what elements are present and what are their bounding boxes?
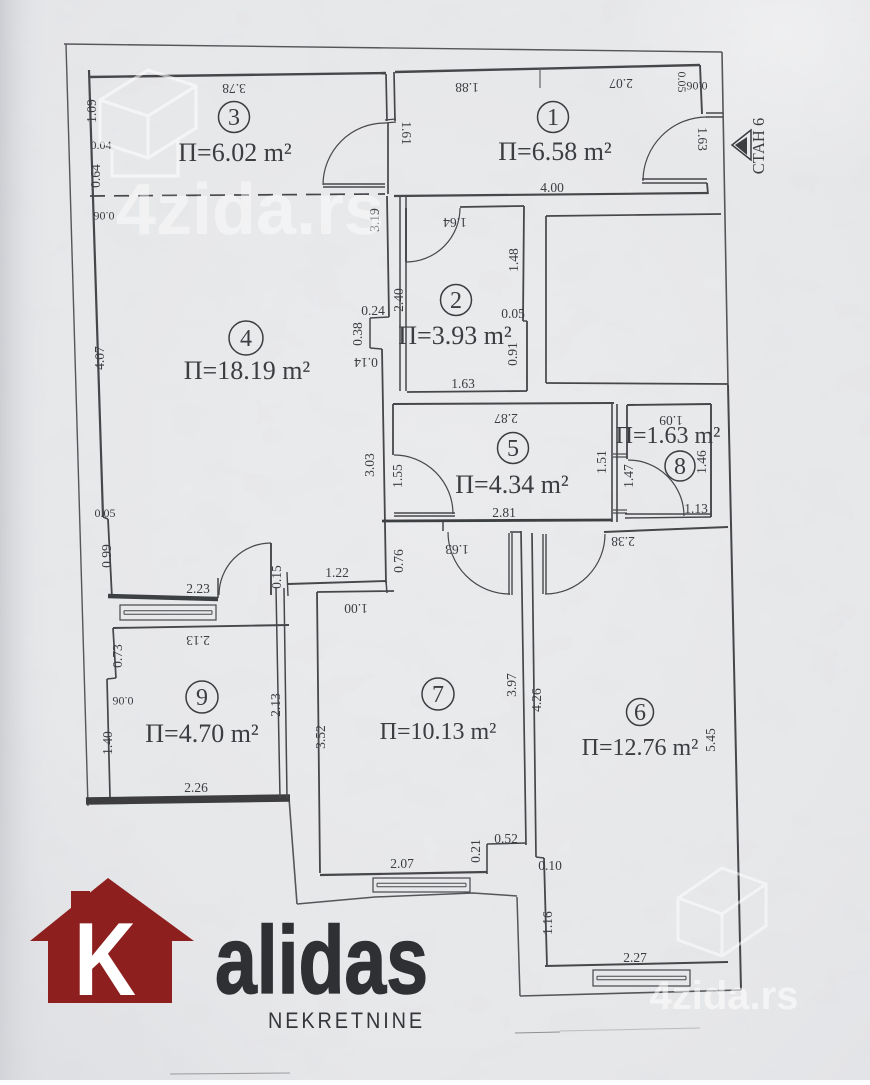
- svg-text:3.97: 3.97: [504, 673, 519, 697]
- svg-text:4.26: 4.26: [529, 688, 544, 712]
- svg-text:1: 1: [547, 105, 559, 131]
- svg-text:alidas: alidas: [215, 907, 428, 1014]
- svg-text:0.21: 0.21: [468, 839, 483, 863]
- svg-text:1.00: 1.00: [344, 601, 368, 616]
- svg-text:1.61: 1.61: [399, 121, 414, 145]
- svg-text:П=10.13 m²: П=10.13 m²: [380, 719, 497, 745]
- svg-text:4: 4: [240, 326, 252, 352]
- svg-text:0.05: 0.05: [501, 306, 525, 321]
- svg-text:П=4.70 m²: П=4.70 m²: [145, 719, 259, 748]
- svg-text:П=6.02 m²: П=6.02 m²: [178, 138, 292, 167]
- svg-text:0.64: 0.64: [88, 164, 103, 188]
- svg-text:0.24: 0.24: [361, 303, 385, 318]
- svg-text:1.09: 1.09: [659, 413, 683, 428]
- svg-text:K: K: [74, 902, 136, 1018]
- svg-text:5.45: 5.45: [703, 728, 718, 752]
- svg-text:П=12.76 m²: П=12.76 m²: [582, 735, 699, 761]
- svg-text:2.13: 2.13: [186, 633, 210, 648]
- svg-text:1.88: 1.88: [455, 80, 479, 95]
- svg-text:0.06: 0.06: [687, 79, 708, 93]
- svg-text:1.13: 1.13: [684, 501, 708, 516]
- svg-text:4zida.rs: 4zida.rs: [650, 974, 799, 1018]
- svg-text:3.78: 3.78: [222, 81, 246, 96]
- svg-text:4zida.rs: 4zida.rs: [116, 170, 384, 250]
- svg-text:2.87: 2.87: [494, 411, 518, 426]
- svg-text:1.63: 1.63: [451, 376, 475, 391]
- svg-text:9: 9: [196, 685, 208, 711]
- svg-text:2: 2: [450, 288, 462, 314]
- svg-text:4.00: 4.00: [540, 180, 564, 195]
- svg-text:0.06: 0.06: [113, 694, 134, 708]
- svg-text:0.38: 0.38: [350, 322, 365, 346]
- svg-text:2.23: 2.23: [186, 581, 210, 596]
- svg-text:1.40: 1.40: [100, 731, 115, 755]
- svg-text:П=3.93 m²: П=3.93 m²: [398, 321, 512, 350]
- svg-text:NEKRETNINE: NEKRETNINE: [268, 1008, 425, 1033]
- svg-text:П=6.58 m²: П=6.58 m²: [498, 137, 612, 166]
- svg-text:0.05: 0.05: [95, 506, 116, 520]
- svg-text:3.52: 3.52: [313, 725, 328, 749]
- svg-text:0.91: 0.91: [505, 342, 520, 366]
- svg-text:0.15: 0.15: [269, 565, 284, 589]
- svg-text:П=4.34 m²: П=4.34 m²: [455, 470, 569, 499]
- svg-text:П=18.19 m²: П=18.19 m²: [184, 356, 311, 385]
- svg-text:2.27: 2.27: [623, 950, 647, 965]
- svg-text:СТАН 6: СТАН 6: [749, 118, 768, 174]
- svg-text:1.16: 1.16: [540, 911, 555, 935]
- svg-text:0.14: 0.14: [354, 355, 378, 370]
- svg-text:3.03: 3.03: [362, 453, 377, 477]
- svg-text:3: 3: [228, 105, 240, 131]
- svg-text:1.51: 1.51: [594, 450, 609, 474]
- svg-text:1.47: 1.47: [621, 464, 636, 488]
- svg-text:6: 6: [634, 700, 646, 726]
- svg-text:1.48: 1.48: [506, 248, 521, 272]
- svg-text:2.38: 2.38: [611, 534, 635, 549]
- svg-text:2.07: 2.07: [609, 76, 633, 91]
- svg-text:5: 5: [507, 436, 519, 462]
- svg-text:0.76: 0.76: [391, 549, 406, 573]
- svg-text:2.07: 2.07: [390, 856, 414, 871]
- svg-text:2.26: 2.26: [184, 780, 208, 795]
- svg-text:0.99: 0.99: [99, 544, 114, 568]
- svg-text:1.63: 1.63: [445, 542, 469, 557]
- svg-text:0.10: 0.10: [538, 858, 562, 873]
- svg-text:1.22: 1.22: [325, 565, 349, 580]
- svg-text:0.06: 0.06: [94, 209, 115, 223]
- svg-text:1.63: 1.63: [695, 127, 710, 151]
- svg-text:1.55: 1.55: [390, 464, 405, 488]
- svg-text:2.13: 2.13: [268, 693, 283, 717]
- svg-text:1.09: 1.09: [84, 99, 99, 123]
- svg-text:0.52: 0.52: [494, 831, 518, 846]
- svg-text:7: 7: [432, 682, 444, 708]
- svg-text:8: 8: [674, 454, 686, 480]
- svg-text:1.64: 1.64: [443, 215, 467, 230]
- svg-text:1.46: 1.46: [694, 450, 709, 474]
- svg-text:2.40: 2.40: [391, 288, 406, 312]
- svg-text:4.07: 4.07: [92, 346, 107, 370]
- svg-text:2.81: 2.81: [492, 505, 516, 520]
- svg-text:0.73: 0.73: [110, 644, 125, 668]
